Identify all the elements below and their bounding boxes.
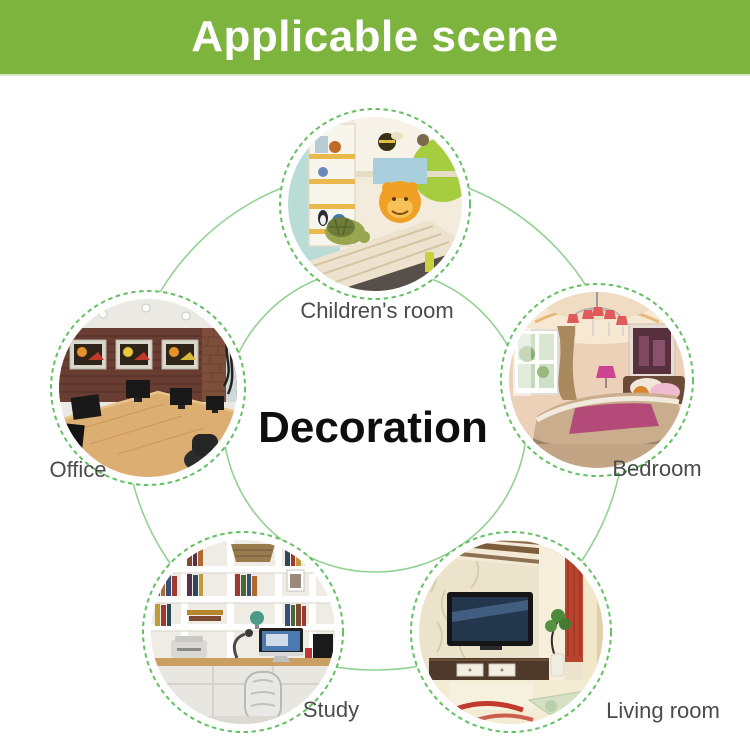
header-banner: Applicable scene [0,0,750,76]
decoration-diagram: Children's room Office Bedroom Study Liv… [0,0,750,750]
bedroom-label: Bedroom [612,456,701,481]
page-title: Applicable scene [191,12,558,62]
scene-bedroom [499,264,695,476]
scene-living-room [411,532,611,732]
childrens-room-label: Children's room [300,298,453,323]
living-room-label: Living room [606,698,720,723]
office-label: Office [49,457,106,482]
scene-childrens-room [280,109,475,299]
study-label: Study [303,697,359,722]
center-title: Decoration [258,403,488,452]
scene-office [51,291,245,485]
page: Applicable scene [0,0,750,750]
living-room-photo [419,540,603,724]
